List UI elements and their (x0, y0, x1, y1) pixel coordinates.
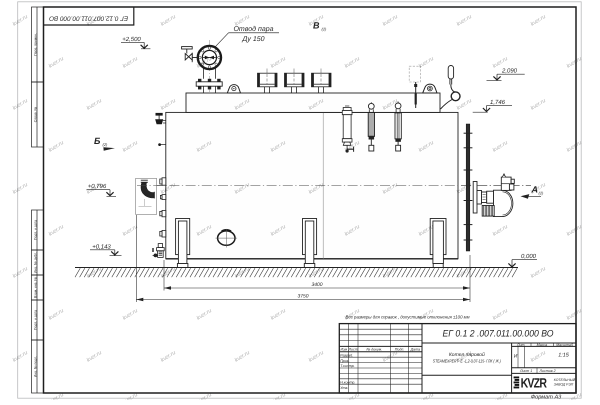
svg-text:Масштаб: Масштаб (556, 343, 574, 347)
svg-text:Лист 1: Лист 1 (519, 369, 532, 373)
svg-text:1,746: 1,746 (490, 99, 506, 106)
svg-text:Все размеры для справок , допу: Все размеры для справок , допустимые отк… (346, 314, 470, 319)
svg-text:Масса: Масса (537, 343, 548, 347)
svg-text:Инв. № дубл.: Инв. № дубл. (33, 252, 37, 273)
svg-text:3400: 3400 (311, 282, 322, 288)
svg-text:Подп.: Подп. (395, 347, 405, 351)
svg-text:И: И (514, 354, 518, 360)
svg-text:ЕГ 0.1 2 .007.011.00.000 ВО: ЕГ 0.1 2 .007.011.00.000 ВО (443, 328, 555, 339)
svg-text:Дата: Дата (410, 347, 420, 351)
svg-text:Листов 2: Листов 2 (539, 369, 556, 373)
svg-text:Взам. инв. №: Взам. инв. № (33, 277, 37, 298)
svg-text:Инв. № подл.: Инв. № подл. (33, 356, 37, 377)
svg-text:STEAMEXPERT- Е -1,2-0,07-115-: STEAMEXPERT- Е -1,2-0,07-115- ГЛК ( Ж ) (433, 359, 501, 364)
svg-text:(2): (2) (103, 142, 109, 147)
svg-text:Отвод пара: Отвод пара (233, 25, 273, 33)
svg-text:Б: Б (94, 136, 101, 146)
svg-text:Подп. и дата: Подп. и дата (33, 310, 37, 330)
svg-text:+2,500: +2,500 (122, 36, 141, 43)
svg-text:2,090: 2,090 (501, 67, 518, 74)
svg-text:Формат А3: Формат А3 (531, 395, 562, 400)
svg-text:Лист: Лист (348, 347, 358, 351)
svg-text:Перв. примен.: Перв. примен. (33, 33, 37, 56)
svg-text:Разраб.: Разраб. (340, 353, 353, 357)
svg-text:Утв.: Утв. (340, 386, 348, 390)
svg-text:КОТЕЛЬНЫЙ: КОТЕЛЬНЫЙ (554, 377, 576, 382)
svg-text:0,000: 0,000 (521, 253, 537, 260)
svg-text:№ докум.: № докум. (366, 347, 382, 351)
svg-text:Пров.: Пров. (340, 359, 349, 363)
svg-text:Подп. и дата: Подп. и дата (33, 220, 37, 240)
svg-text:Т.контр.: Т.контр. (340, 364, 355, 368)
svg-text:Лит.: Лит. (516, 343, 525, 347)
svg-text:3750: 3750 (297, 294, 308, 300)
svg-text:Изм: Изм (340, 347, 347, 351)
svg-text:KVZR: KVZR (521, 375, 548, 390)
svg-text:(2): (2) (322, 27, 328, 32)
svg-text:Ду 150: Ду 150 (241, 36, 264, 43)
svg-text:ЗАВОД РЭП: ЗАВОД РЭП (554, 383, 574, 387)
svg-text:Н.контр.: Н.контр. (340, 380, 355, 384)
svg-text:+0,143: +0,143 (92, 243, 111, 250)
svg-text:1:15: 1:15 (558, 353, 569, 359)
svg-text:Справ. №: Справ. № (33, 106, 37, 122)
